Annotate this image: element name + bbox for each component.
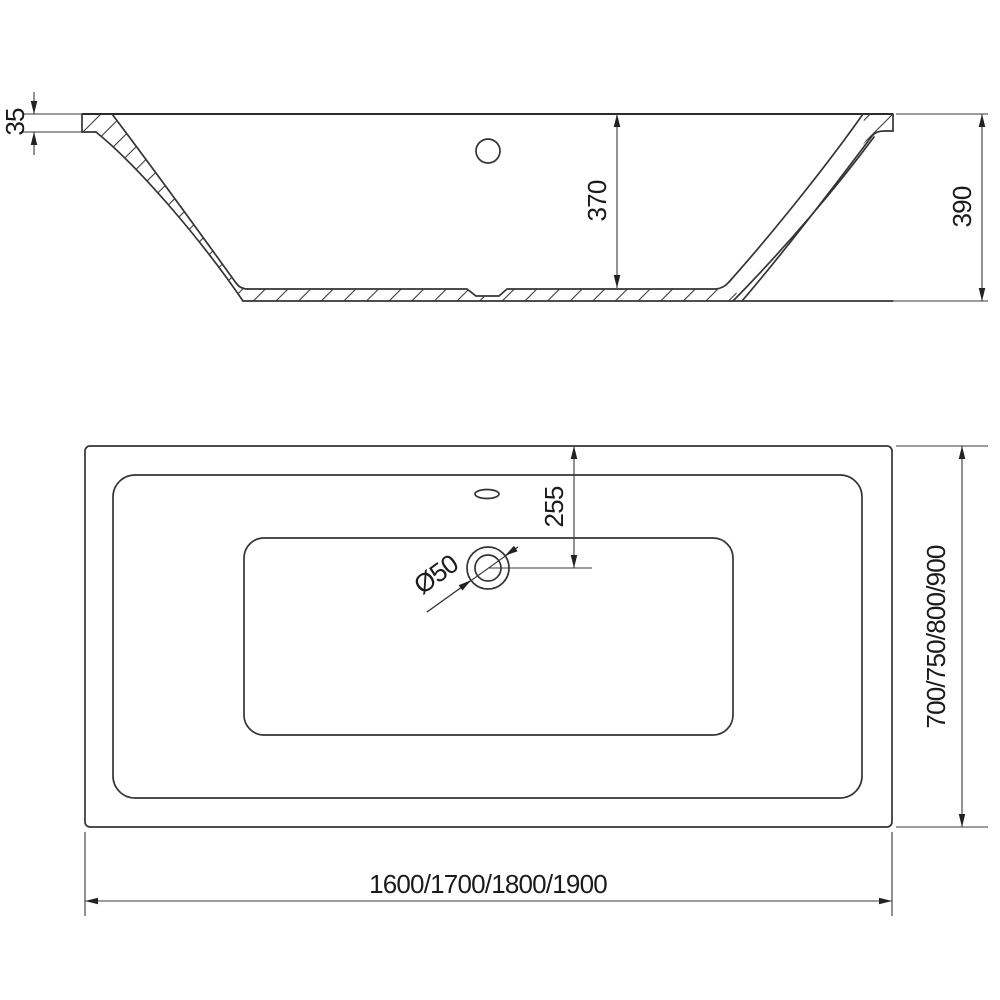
dimension-inner-depth: 370: [582, 114, 617, 288]
overflow-hole-plan: [475, 490, 499, 499]
side-section-view: 35 370 390: [0, 92, 988, 301]
tub-outer-rect: [85, 446, 892, 827]
plan-view: 255 Ø50 1600/1700/1800/1900 700/750/800/…: [85, 446, 988, 916]
dimension-rim-thickness: 35: [0, 92, 82, 155]
arrow-line-upper: [505, 547, 518, 556]
extension-line: [22, 114, 82, 132]
overflow-hole-section: [476, 139, 500, 163]
dimension-drain-diameter: Ø50: [408, 547, 518, 612]
dim-text-width: 700/750/800/900: [921, 545, 951, 729]
dimension-length-options: 1600/1700/1800/1900: [85, 832, 892, 916]
section-hatch-right-wall: [733, 114, 893, 301]
dim-text-370: 370: [582, 180, 612, 221]
dimension-drain-offset: 255: [539, 446, 574, 568]
drawing-sheet: 35 370 390 255: [0, 0, 1000, 1000]
dimension-width-options: 700/750/800/900: [896, 446, 988, 827]
dim-text-390: 390: [947, 186, 977, 227]
dim-text-length: 1600/1700/1800/1900: [369, 869, 607, 899]
dim-text-35: 35: [0, 108, 30, 136]
tub-rim-inner-rect: [113, 475, 862, 798]
tub-left-wall-outer: [96, 132, 243, 301]
dimension-overall-height: 390: [893, 114, 988, 301]
dim-text-255: 255: [539, 486, 569, 527]
technical-drawing-canvas: 35 370 390 255: [0, 0, 1000, 1000]
tub-left-wall-inner: [112, 114, 248, 289]
tub-right-wall-inner-near: [729, 114, 863, 282]
